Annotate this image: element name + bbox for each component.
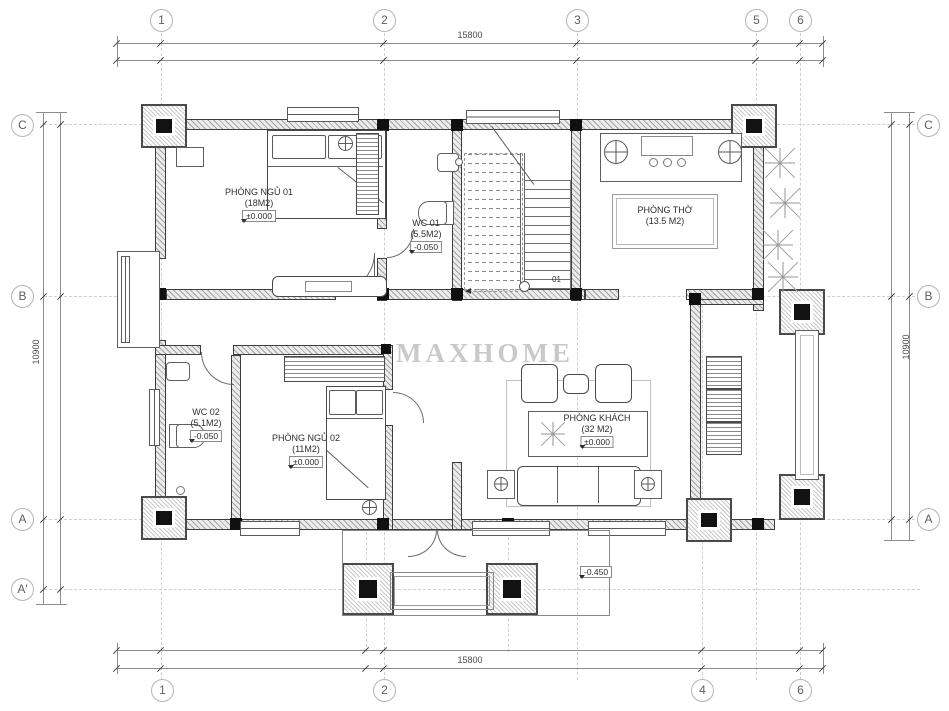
- dim-line-left-inner: [60, 112, 61, 605]
- ornate-column-loggia-bottom: [779, 474, 825, 520]
- stair-number-label: 01: [552, 275, 561, 284]
- grid-bubble-left-B: B: [11, 285, 34, 308]
- wardrobe-bedroom1: [356, 133, 379, 215]
- dim-text-right: 10900: [901, 325, 911, 369]
- ornate-column-loggia-top: [779, 289, 825, 335]
- porch-steps: [390, 572, 494, 610]
- stair-flight-upper-dashed: [464, 153, 523, 290]
- room-name: PHÒNG THỜ: [637, 205, 692, 216]
- dim-line-bottom-inner: [117, 668, 824, 669]
- loggia-rail-inner: [800, 335, 814, 475]
- room-label-wc1: WC 01 (5.5M2) -0.050: [410, 218, 442, 253]
- wall-stair-east: [571, 119, 581, 301]
- side-table-small: [563, 374, 589, 394]
- ornate-column-top-left: [141, 104, 187, 148]
- wall-bed2-top: [233, 345, 393, 355]
- column: [752, 518, 764, 530]
- room-name: WC 01: [410, 218, 442, 229]
- plant-icon: [541, 422, 565, 446]
- column: [689, 293, 701, 305]
- ornate-column-bottom-right: [686, 498, 732, 542]
- dim-text-top: 15800: [457, 30, 482, 40]
- level-tag: ±0.000: [289, 456, 323, 468]
- grid-bubble-right-A: A: [917, 508, 940, 531]
- grid-bubble-right-B: B: [917, 285, 940, 308]
- grid-bubble-top-3: 3: [566, 9, 589, 32]
- room-area: (13.5 M2): [637, 216, 692, 227]
- room-label-worship: PHÒNG THỜ (13.5 M2): [637, 205, 692, 227]
- level-tag: -0.050: [410, 241, 442, 253]
- sofa: [517, 466, 641, 506]
- plant-icon: [763, 230, 793, 260]
- grid-bubble-bottom-1: 1: [151, 679, 174, 702]
- nightstand-bedroom1: [176, 147, 204, 167]
- porch-level-tag: -0.450: [580, 566, 612, 578]
- plant-icon: [768, 262, 798, 292]
- wall-top: [155, 119, 775, 130]
- column: [570, 119, 582, 131]
- sofa-seat-divider: [598, 467, 599, 503]
- grid-bubble-left-A2: A': [11, 578, 34, 601]
- dim-text-left: 10900: [31, 330, 41, 374]
- level-tag: -0.050: [190, 430, 222, 442]
- plant-icon: [770, 188, 800, 218]
- grid-bubble-top-6: 6: [789, 9, 812, 32]
- dim-end-right-bottom: [884, 540, 915, 541]
- censer-icon: [677, 158, 686, 167]
- grid-bubble-bottom-6: 6: [789, 679, 812, 702]
- wall-hall-east-stub: [452, 462, 462, 530]
- wall-living-east: [690, 300, 701, 530]
- dim-line-left-outer: [43, 112, 44, 605]
- grid-bubble-top-5: 5: [745, 9, 768, 32]
- column: [381, 344, 391, 354]
- faucet-icon: [455, 158, 463, 166]
- wall-wc2-top-left: [155, 345, 201, 355]
- grid-bubble-bottom-4: 4: [691, 679, 714, 702]
- bay-window-glass: [121, 256, 130, 343]
- stair-newel: [519, 281, 530, 292]
- stair-direction-arrow: [462, 288, 471, 294]
- censer-icon: [663, 158, 672, 167]
- wall-worship-entry-left: [585, 289, 619, 300]
- window-bottom-1: [240, 521, 300, 536]
- dim-line-top-outer: [117, 43, 824, 44]
- room-label-wc2: WC 02 (5.1M2) -0.050: [190, 407, 222, 442]
- pillow: [272, 135, 326, 159]
- altar-plate-icon: [718, 140, 742, 164]
- armchair: [521, 364, 558, 403]
- floor-plan-canvas: 15800 15800 10900 10900 1 2 3 5 6 1 2 4 …: [0, 0, 949, 711]
- column: [752, 288, 764, 300]
- room-area: (32 M2): [563, 424, 630, 435]
- grid-bubble-top-2: 2: [373, 9, 396, 32]
- window-stair-top: [466, 110, 560, 124]
- grid-bubble-right-C: C: [917, 114, 940, 137]
- room-label-living: PHÒNG KHÁCH (32 M2) ±0.000: [563, 413, 630, 448]
- floor-drain-icon: [176, 486, 185, 495]
- sink-wc2: [166, 362, 190, 381]
- room-area: (5.5M2): [410, 229, 442, 240]
- grid-bubble-left-C: C: [11, 114, 34, 137]
- ceiling-fan-icon: [338, 136, 353, 151]
- stair-flight-lower: [524, 180, 571, 290]
- room-name: WC 02: [190, 407, 222, 418]
- column: [570, 288, 582, 300]
- dim-end-left-bottom: [36, 604, 67, 605]
- grid-bubble-left-A: A: [11, 508, 34, 531]
- dim-line-top-inner: [117, 60, 824, 61]
- column: [451, 119, 463, 131]
- window-bedroom1-top: [287, 107, 359, 122]
- louver-door-2: [706, 389, 742, 422]
- dim-text-bottom: 15800: [457, 655, 482, 665]
- ornate-column-bottom-left: [141, 496, 187, 540]
- armchair: [595, 364, 632, 403]
- ceiling-fan-icon: [362, 500, 377, 515]
- door-arc-wc2: [201, 352, 234, 385]
- grid-line-4: [702, 300, 703, 680]
- room-label-bedroom2: PHÒNG NGỦ 02 (11M2) ±0.000: [272, 433, 340, 468]
- blanket-line: [327, 418, 383, 419]
- lamp-icon: [494, 477, 508, 491]
- watermark: MAXHOME: [396, 338, 574, 369]
- level-tag: ±0.000: [242, 210, 276, 222]
- room-label-bedroom1: PHÒNG NGỦ 01 (18M2) ±0.000: [225, 187, 293, 222]
- louver-door-1: [706, 356, 742, 389]
- door-arc-bedroom2: [393, 392, 424, 423]
- room-name: PHÒNG NGỦ 01: [225, 187, 293, 198]
- altar-plate-icon: [604, 140, 628, 164]
- room-area: (11M2): [272, 444, 340, 455]
- dim-line-bottom-outer: [117, 650, 824, 651]
- grid-bubble-bottom-2: 2: [373, 679, 396, 702]
- window-left-lower: [149, 389, 160, 446]
- wardrobe-bedroom2: [284, 356, 385, 382]
- dim-end-left-top: [36, 112, 67, 113]
- room-area: (5.1M2): [190, 418, 222, 429]
- plant-icon: [765, 148, 795, 178]
- dim-end-right-top: [884, 112, 915, 113]
- column: [377, 518, 389, 530]
- room-name: PHÒNG KHÁCH: [563, 413, 630, 424]
- grid-bubble-top-1: 1: [150, 9, 173, 32]
- censer-icon: [649, 158, 658, 167]
- sofa-seat-divider: [557, 467, 558, 503]
- altar-inner: [641, 136, 693, 156]
- pillow: [329, 390, 356, 415]
- louver-door-3: [706, 422, 742, 455]
- room-area: (18M2): [225, 198, 293, 209]
- room-name: PHÒNG NGỦ 02: [272, 433, 340, 444]
- pillow: [356, 390, 383, 415]
- lamp-icon: [641, 477, 655, 491]
- stair-direction-line: [468, 291, 518, 292]
- level-tag: ±0.000: [580, 436, 614, 448]
- dresser-tray: [305, 281, 352, 292]
- dim-line-right-outer: [891, 112, 892, 540]
